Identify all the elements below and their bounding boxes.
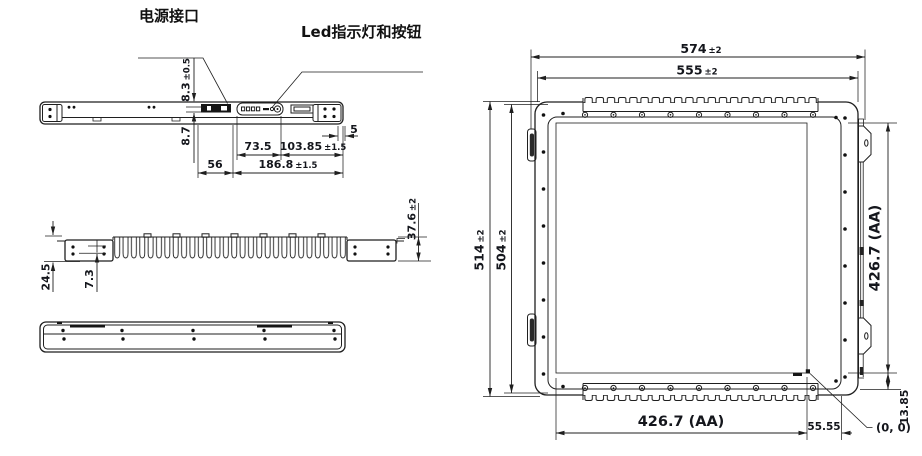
svg-text:504±2: 504±2 [494, 229, 509, 270]
heatsink-fins [113, 234, 347, 262]
svg-text:7.3: 7.3 [83, 269, 96, 289]
bottom-slot-right [257, 325, 292, 328]
dim-aa-height: 426.7 (AA) [868, 205, 884, 292]
right-end-block [313, 105, 341, 122]
dim-186-8: 186.8±1.5 [259, 158, 318, 171]
origin-label: (0, 0) [876, 421, 911, 435]
frame-mounting-holes [542, 112, 847, 389]
front-bezel [548, 117, 841, 389]
led-button-label: Led指示灯和按钮 [301, 23, 421, 41]
dim-555: 555±2 [676, 63, 717, 78]
dim-8-3: 8.3±0.5 [180, 58, 193, 102]
dim-514: 514±2 [472, 229, 487, 270]
dim-56: 56 [207, 158, 223, 171]
led-indicator-group [237, 103, 283, 115]
top-heatsink-strip [583, 97, 818, 112]
dim-55-55: 55.55 [807, 421, 840, 433]
dim-574: 574±2 [680, 41, 721, 56]
dim-7-3: 7.3 [83, 269, 96, 289]
dim-37-6: 37.6±2 [406, 198, 419, 240]
bottom-mounting-holes [61, 329, 336, 341]
svg-text:24.5: 24.5 [40, 263, 53, 290]
top-view: 电源接口 Led指示灯和按钮 8.3±0.5 8.7 73.5 103.85±1… [40, 7, 423, 178]
origin-point [806, 369, 810, 373]
svg-text:37.6±2: 37.6±2 [406, 198, 419, 240]
svg-text:8.7: 8.7 [180, 126, 193, 146]
side-view: 24.5 7.3 37.6±2 [40, 198, 432, 292]
power-connector [201, 104, 231, 113]
active-area [556, 123, 807, 373]
svg-text:426.7 (AA): 426.7 (AA) [868, 205, 884, 292]
io-connector [291, 105, 313, 113]
svg-text:8.3±0.5: 8.3±0.5 [180, 58, 193, 102]
dim-504: 504±2 [494, 229, 509, 270]
front-frame [535, 102, 858, 395]
front-view: 574±2 555±2 514±2 504±2 426.7 (AA) 13.85 [472, 41, 912, 440]
dim-73-5: 73.5 [244, 140, 271, 153]
engineering-drawing-page: 电源接口 Led指示灯和按钮 8.3±0.5 8.7 73.5 103.85±1… [0, 0, 922, 456]
power-port-label: 电源接口 [139, 7, 199, 25]
engineering-drawing: 电源接口 Led指示灯和按钮 8.3±0.5 8.7 73.5 103.85±1… [0, 0, 922, 456]
dim-aa-width: 426.7 (AA) [638, 414, 725, 430]
dim-5: 5 [350, 123, 358, 136]
dim-24-5: 24.5 [40, 263, 53, 290]
mounting-plate-right [347, 240, 396, 261]
mounting-plate-left [65, 240, 113, 261]
dim-8-7: 8.7 [180, 126, 193, 146]
left-end-block [43, 105, 63, 122]
bottom-view [40, 322, 345, 353]
svg-text:514±2: 514±2 [472, 229, 487, 270]
dim-103-85: 103.85±1.5 [280, 140, 347, 153]
bottom-slot-left [70, 325, 105, 328]
dim-13-85: 13.85 [898, 390, 911, 425]
svg-text:13.85: 13.85 [898, 390, 911, 425]
